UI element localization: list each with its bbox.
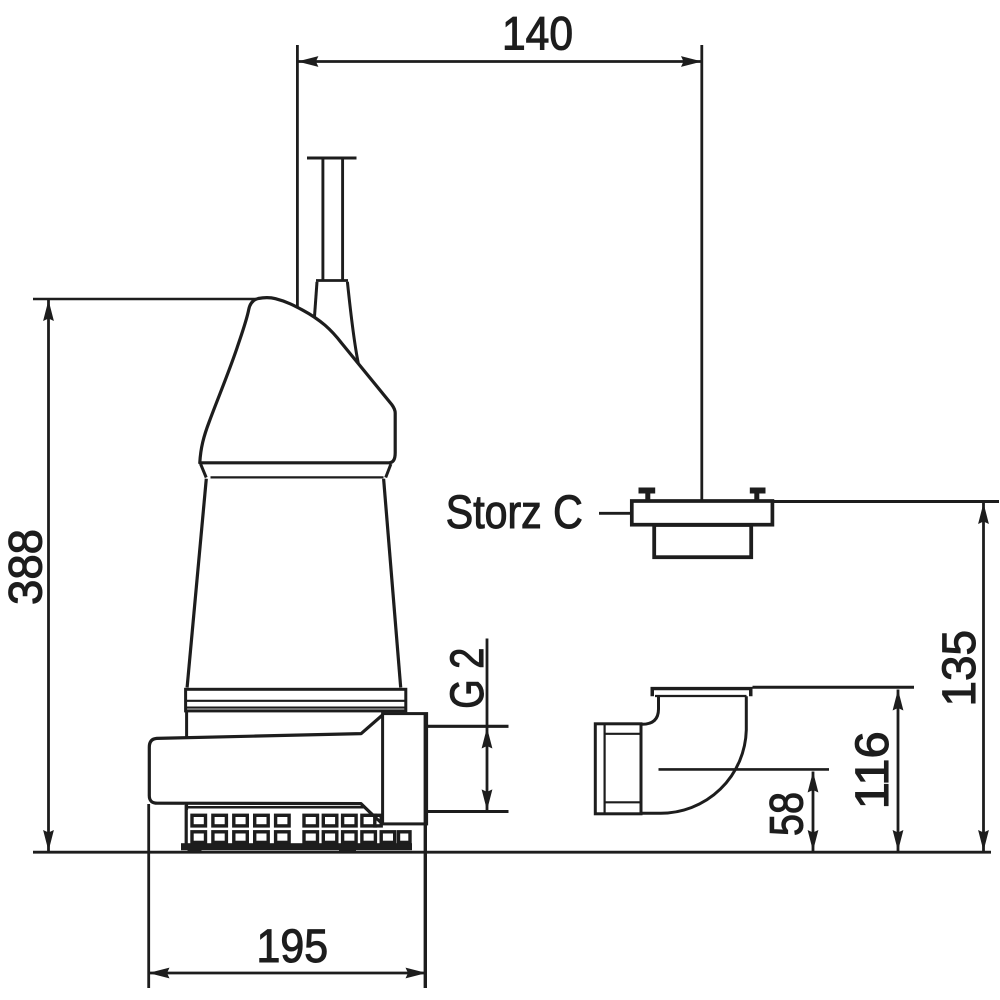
svg-text:58: 58 — [760, 792, 813, 836]
svg-text:116: 116 — [845, 731, 898, 809]
svg-text:135: 135 — [932, 630, 985, 707]
svg-text:G 2: G 2 — [440, 648, 493, 709]
svg-text:195: 195 — [257, 919, 329, 972]
svg-text:388: 388 — [0, 529, 51, 605]
svg-text:Storz C: Storz C — [446, 485, 583, 538]
svg-text:140: 140 — [502, 6, 573, 59]
